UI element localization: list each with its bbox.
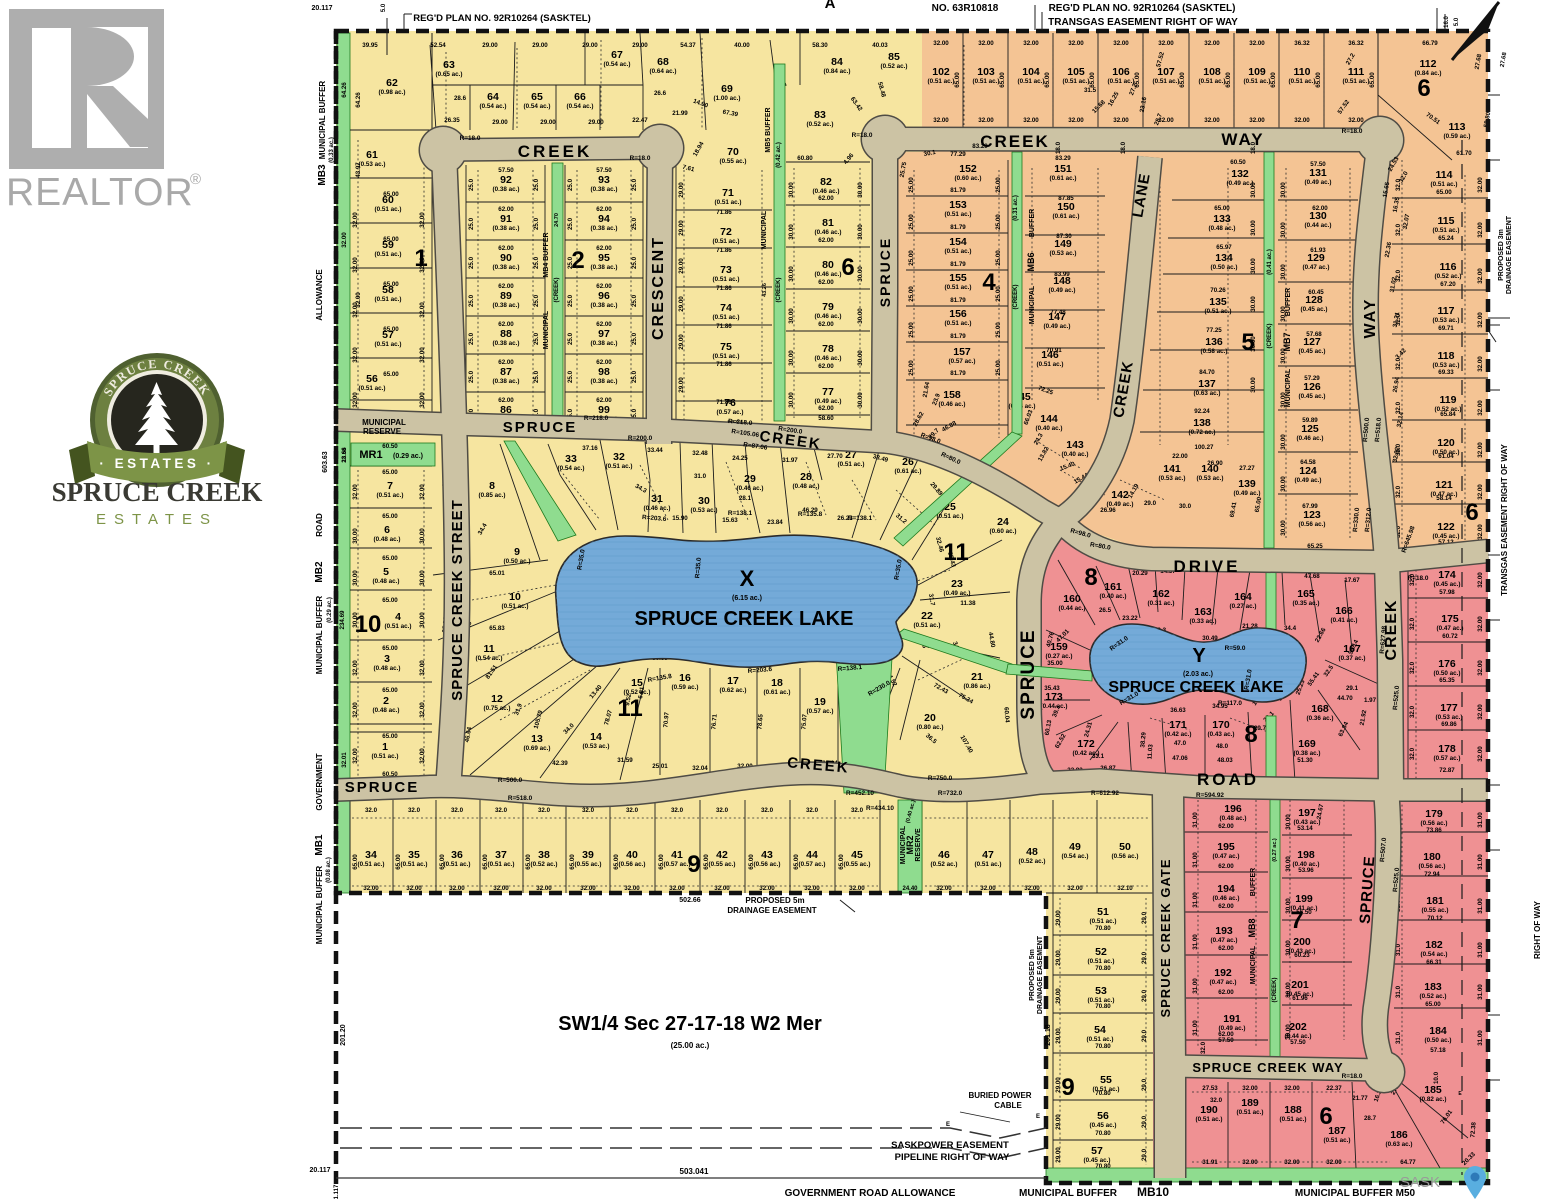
svg-text:TRANSGAS EASEMENT RIGHT O: TRANSGAS EASEMENT RIGHT OF WAY xyxy=(1048,17,1238,28)
svg-text:81.79: 81.79 xyxy=(950,187,966,194)
svg-text:PIPELINE RIGHT OF WAY: PIPELINE RIGHT OF WAY xyxy=(895,1152,1010,1163)
svg-text:65.00: 65.00 xyxy=(382,645,398,652)
svg-text:29.1: 29.1 xyxy=(1346,685,1359,692)
svg-text:102: 102 xyxy=(932,66,950,78)
svg-text:BUFFER: BUFFER xyxy=(1250,868,1257,896)
svg-text:RESERVE: RESERVE xyxy=(363,427,402,436)
svg-text:65.83: 65.83 xyxy=(489,625,505,632)
svg-text:25.0: 25.0 xyxy=(567,370,574,383)
svg-text:(0.98 ac.): (0.98 ac.) xyxy=(379,89,406,96)
svg-text:25.0: 25.0 xyxy=(533,294,540,307)
svg-text:25.0: 25.0 xyxy=(631,294,638,307)
svg-text:10: 10 xyxy=(355,611,382,638)
svg-text:84.70: 84.70 xyxy=(1199,369,1215,376)
svg-text:31.00: 31.00 xyxy=(1477,942,1484,958)
svg-text:REG'D PLAN NO. 92R10264: REG'D PLAN NO. 92R10264 (SASKTEL) xyxy=(413,13,591,24)
svg-text:57.98: 57.98 xyxy=(1439,589,1455,596)
svg-text:32.00: 32.00 xyxy=(419,484,426,500)
svg-text:71: 71 xyxy=(722,187,734,199)
svg-text:2: 2 xyxy=(571,247,584,274)
svg-text:65.00: 65.00 xyxy=(383,326,399,333)
svg-text:(0.51 ac.): (0.51 ac.) xyxy=(385,623,412,630)
svg-text:65.00: 65.00 xyxy=(1425,1001,1441,1008)
svg-text:29.00: 29.00 xyxy=(1055,1028,1062,1044)
svg-text:58.30: 58.30 xyxy=(812,42,828,49)
svg-text:R=612.92: R=612.92 xyxy=(1091,790,1119,797)
svg-text:37: 37 xyxy=(495,849,507,861)
svg-text:(0.43 ac.): (0.43 ac.) xyxy=(1208,731,1235,738)
svg-text:32.00: 32.00 xyxy=(1023,117,1039,124)
svg-text:32.00: 32.00 xyxy=(355,292,362,308)
svg-text:75: 75 xyxy=(720,341,732,353)
svg-text:98: 98 xyxy=(598,366,610,378)
svg-text:29.00: 29.00 xyxy=(632,42,648,49)
svg-text:83.29: 83.29 xyxy=(1055,155,1071,162)
svg-text:134: 134 xyxy=(1215,252,1233,264)
svg-text:6: 6 xyxy=(384,524,390,536)
svg-text:46: 46 xyxy=(938,849,950,861)
svg-text:(0.53 ac.): (0.53 ac.) xyxy=(1050,250,1077,257)
svg-text:66: 66 xyxy=(574,91,586,103)
svg-text:31.00: 31.00 xyxy=(1477,1030,1484,1046)
svg-text:32.00: 32.00 xyxy=(1477,524,1484,540)
svg-text:WAY: WAY xyxy=(1221,130,1264,149)
svg-text:29.0: 29.0 xyxy=(1144,500,1157,507)
svg-text:25.0: 25.0 xyxy=(468,332,475,345)
svg-text:(0.75 ac.): (0.75 ac.) xyxy=(484,705,511,712)
svg-text:32.00: 32.00 xyxy=(1249,117,1265,124)
svg-text:(0.46 ac.): (0.46 ac.) xyxy=(939,401,966,408)
svg-text:47.0: 47.0 xyxy=(1174,740,1187,747)
svg-text:32.00: 32.00 xyxy=(1477,356,1484,372)
svg-text:(0.47 ac.): (0.47 ac.) xyxy=(1211,937,1238,944)
svg-text:60.04: 60.04 xyxy=(1002,707,1010,724)
svg-text:64: 64 xyxy=(487,91,499,103)
svg-text:(0.29 ac.): (0.29 ac.) xyxy=(327,597,333,623)
svg-text:29.0: 29.0 xyxy=(1141,1148,1148,1161)
svg-text:6: 6 xyxy=(1417,75,1430,102)
svg-text:29: 29 xyxy=(744,473,756,485)
svg-text:42: 42 xyxy=(716,849,728,861)
svg-text:PROPOSED 5m: PROPOSED 5m xyxy=(1029,949,1036,1001)
svg-text:29.00: 29.00 xyxy=(588,119,604,126)
svg-text:32.00: 32.00 xyxy=(1477,660,1484,676)
svg-text:(0.47 ac.): (0.47 ac.) xyxy=(1213,853,1240,860)
svg-text:44: 44 xyxy=(806,849,818,861)
svg-text:8: 8 xyxy=(489,480,495,492)
svg-text:(0.51 ac.): (0.51 ac.) xyxy=(1237,1109,1264,1116)
svg-text:(0.44 ac.): (0.44 ac.) xyxy=(1059,605,1086,612)
svg-text:R=138.1: R=138.1 xyxy=(728,510,753,517)
svg-text:9: 9 xyxy=(514,546,520,558)
svg-text:61.04: 61.04 xyxy=(1438,453,1454,460)
svg-text:121: 121 xyxy=(1435,479,1453,491)
svg-text:177: 177 xyxy=(1440,702,1458,714)
svg-text:(25.00 ac.): (25.00 ac.) xyxy=(671,1041,710,1050)
svg-text:62.00: 62.00 xyxy=(596,206,612,213)
svg-text:65.00: 65.00 xyxy=(1369,72,1376,88)
svg-text:54.37: 54.37 xyxy=(680,42,696,49)
svg-text:(0.52 ac.): (0.52 ac.) xyxy=(531,861,558,868)
svg-text:(0.51 ac.): (0.51 ac.) xyxy=(945,211,972,218)
svg-text:7: 7 xyxy=(1290,907,1303,934)
svg-text:SPRUCE: SPRUCE xyxy=(1018,628,1039,719)
svg-text:190: 190 xyxy=(1200,1104,1218,1116)
svg-text:(0.46 ac.): (0.46 ac.) xyxy=(815,229,842,236)
svg-text:65.00: 65.00 xyxy=(382,733,398,740)
svg-text:(0.36 ac.): (0.36 ac.) xyxy=(1307,715,1334,722)
svg-text:176: 176 xyxy=(1438,658,1456,670)
svg-text:(0.42 ac.): (0.42 ac.) xyxy=(776,142,782,168)
svg-text:MB8: MB8 xyxy=(1247,918,1257,937)
svg-text:48: 48 xyxy=(1026,846,1038,858)
svg-text:37.16: 37.16 xyxy=(582,445,598,452)
svg-text:(0.56 ac.): (0.56 ac.) xyxy=(1421,820,1448,827)
svg-text:(0.51 ac.): (0.51 ac.) xyxy=(838,461,865,468)
svg-text:58.14: 58.14 xyxy=(1436,495,1452,502)
svg-text:(0.38 ac.): (0.38 ac.) xyxy=(591,302,618,309)
svg-text:32.00: 32.00 xyxy=(1294,117,1310,124)
svg-text:32.00: 32.00 xyxy=(419,302,426,318)
svg-text:(0.51 ac.): (0.51 ac.) xyxy=(1037,361,1064,368)
svg-text:30.00: 30.00 xyxy=(1280,182,1287,198)
svg-text:1.97: 1.97 xyxy=(1364,697,1377,704)
svg-text:32.0: 32.0 xyxy=(626,807,639,814)
svg-text:30.0: 30.0 xyxy=(1179,503,1192,510)
svg-text:69: 69 xyxy=(721,83,733,95)
svg-text:32.0: 32.0 xyxy=(451,807,464,814)
svg-text:MB6: MB6 xyxy=(1026,252,1036,271)
svg-text:(0.62 ac.): (0.62 ac.) xyxy=(720,687,747,694)
svg-text:32.00: 32.00 xyxy=(978,40,994,47)
svg-text:30.00: 30.00 xyxy=(1285,856,1292,872)
svg-text:119: 119 xyxy=(1440,394,1457,406)
svg-text:65.00: 65.00 xyxy=(383,281,399,288)
svg-text:185: 185 xyxy=(1424,1084,1442,1096)
svg-text:71.86: 71.86 xyxy=(716,323,732,330)
svg-text:138: 138 xyxy=(1193,417,1211,429)
svg-text:32.0: 32.0 xyxy=(365,807,378,814)
svg-text:(0.48 ac.): (0.48 ac.) xyxy=(374,665,401,672)
svg-text:43.26: 43.26 xyxy=(762,283,768,297)
svg-text:131: 131 xyxy=(1309,167,1327,179)
svg-text:117: 117 xyxy=(1438,305,1455,317)
svg-text:57.68: 57.68 xyxy=(1306,331,1322,338)
svg-text:105: 105 xyxy=(1067,66,1085,78)
svg-text:24.25: 24.25 xyxy=(732,455,748,462)
svg-text:32.00: 32.00 xyxy=(419,660,426,676)
svg-text:71.86: 71.86 xyxy=(716,361,732,368)
svg-text:113: 113 xyxy=(1449,121,1466,133)
svg-text:(0.44 ac.): (0.44 ac.) xyxy=(1305,222,1332,229)
svg-text:SPRUCE: SPRUCE xyxy=(503,419,578,436)
svg-text:32.00: 32.00 xyxy=(1158,40,1174,47)
svg-text:65.00: 65.00 xyxy=(383,371,399,378)
svg-text:65.00: 65.00 xyxy=(748,854,755,870)
svg-text:80: 80 xyxy=(822,259,834,271)
svg-text:25.01: 25.01 xyxy=(652,763,668,770)
svg-text:78: 78 xyxy=(822,343,834,355)
svg-text:DRIVE: DRIVE xyxy=(1174,557,1241,576)
svg-text:(0.56 ac.): (0.56 ac.) xyxy=(1112,853,1139,860)
svg-text:39: 39 xyxy=(582,849,594,861)
svg-text:8: 8 xyxy=(1244,721,1257,748)
svg-text:25.0: 25.0 xyxy=(533,217,540,230)
svg-text:124: 124 xyxy=(1299,465,1317,477)
svg-text:(CREEK): (CREEK) xyxy=(1013,284,1019,309)
svg-text:32.00: 32.00 xyxy=(1477,616,1484,632)
svg-text:®: ® xyxy=(190,171,201,188)
svg-text:(0.51 ac.): (0.51 ac.) xyxy=(713,353,740,360)
svg-text:132: 132 xyxy=(1231,168,1249,180)
svg-text:69.33: 69.33 xyxy=(1438,369,1454,376)
svg-text:(0.61 ac.): (0.61 ac.) xyxy=(1050,175,1077,182)
svg-text:(0.51 ac.): (0.51 ac.) xyxy=(945,248,972,255)
svg-text:(0.51 ac.): (0.51 ac.) xyxy=(715,199,742,206)
svg-text:62.00: 62.00 xyxy=(818,405,834,412)
svg-text:104: 104 xyxy=(1022,66,1040,78)
svg-text:38.29: 38.29 xyxy=(1139,731,1147,748)
svg-text:(0.64 ac.): (0.64 ac.) xyxy=(650,68,677,75)
svg-text:65.24: 65.24 xyxy=(1438,235,1454,242)
svg-text:(0.40 ac.): (0.40 ac.) xyxy=(1036,425,1063,432)
svg-text:197: 197 xyxy=(1298,807,1316,819)
svg-text:(0.56 ac.): (0.56 ac.) xyxy=(619,861,646,868)
svg-text:22.47: 22.47 xyxy=(632,117,648,124)
svg-text:(0.63 ac.): (0.63 ac.) xyxy=(1194,390,1221,397)
svg-text:33.44: 33.44 xyxy=(647,447,663,454)
svg-text:70.91: 70.91 xyxy=(1046,347,1062,354)
svg-text:160: 160 xyxy=(1063,593,1081,605)
svg-text:(0.61 ac.): (0.61 ac.) xyxy=(764,689,791,696)
svg-text:167: 167 xyxy=(1343,643,1361,655)
svg-text:(0.54 ac.): (0.54 ac.) xyxy=(524,103,551,110)
svg-text:(0.53 ac.): (0.53 ac.) xyxy=(1433,362,1460,369)
svg-text:(0.38 ac.): (0.38 ac.) xyxy=(493,378,520,385)
svg-text:DRAINAGE EASEMENT: DRAINAGE EASEMENT xyxy=(727,906,816,915)
svg-text:85: 85 xyxy=(888,51,900,63)
svg-text:32.0: 32.0 xyxy=(1395,223,1402,236)
svg-text:71.86: 71.86 xyxy=(716,209,732,216)
svg-text:(0.51 ac.): (0.51 ac.) xyxy=(377,492,404,499)
svg-text:WAY: WAY xyxy=(1362,298,1379,339)
svg-text:53: 53 xyxy=(1095,985,1107,997)
svg-text:139: 139 xyxy=(1238,478,1256,490)
svg-text:(0.51 ac.): (0.51 ac.) xyxy=(1289,78,1316,85)
svg-text:(0.55 ac.): (0.55 ac.) xyxy=(844,861,871,868)
svg-text:83: 83 xyxy=(814,109,826,121)
svg-text:87: 87 xyxy=(500,366,512,378)
svg-text:30.00: 30.00 xyxy=(857,266,864,282)
svg-text:(0.27 ac.): (0.27 ac.) xyxy=(1230,603,1257,610)
svg-text:14: 14 xyxy=(590,731,602,743)
svg-text:7: 7 xyxy=(387,480,393,492)
svg-text:(0.51 ac.): (0.51 ac.) xyxy=(488,861,515,868)
svg-text:32.00: 32.00 xyxy=(1249,40,1265,47)
svg-text:MB5 BUFFER: MB5 BUFFER xyxy=(765,107,772,152)
svg-text:10.0: 10.0 xyxy=(1433,1071,1440,1084)
svg-text:R=218.0: R=218.0 xyxy=(584,415,609,422)
svg-text:72.38: 72.38 xyxy=(1469,1121,1477,1138)
svg-text:23.22: 23.22 xyxy=(1122,615,1138,622)
svg-text:25.0: 25.0 xyxy=(533,370,540,383)
svg-text:29.00: 29.00 xyxy=(1055,910,1062,926)
svg-text:125: 125 xyxy=(1301,423,1319,435)
svg-text:29.00: 29.00 xyxy=(582,42,598,49)
svg-text:50: 50 xyxy=(1119,841,1131,853)
svg-text:(0.51 ac.): (0.51 ac.) xyxy=(713,238,740,245)
svg-text:32.00: 32.00 xyxy=(419,702,426,718)
svg-text:38: 38 xyxy=(538,849,550,861)
svg-text:62.00: 62.00 xyxy=(596,321,612,328)
svg-text:96: 96 xyxy=(598,290,610,302)
svg-text:(0.55 ac.): (0.55 ac.) xyxy=(1422,907,1449,914)
svg-text:(0.50 ac.): (0.50 ac.) xyxy=(1211,264,1238,271)
svg-text:57.50: 57.50 xyxy=(1218,1037,1234,1044)
svg-text:44.70: 44.70 xyxy=(1337,695,1353,702)
svg-text:65.00: 65.00 xyxy=(1179,72,1186,88)
svg-text:65.00: 65.00 xyxy=(383,191,399,198)
svg-text:MR2: MR2 xyxy=(905,835,915,854)
svg-text:62.00: 62.00 xyxy=(1312,205,1328,212)
svg-text:(CREEK): (CREEK) xyxy=(1272,977,1278,1002)
svg-text:(0.45 ac.): (0.45 ac.) xyxy=(1299,393,1326,400)
svg-text:28: 28 xyxy=(800,471,812,483)
svg-text:67.99: 67.99 xyxy=(1302,503,1318,510)
svg-text:(0.48 ac.): (0.48 ac.) xyxy=(1220,815,1247,822)
svg-text:182: 182 xyxy=(1425,939,1443,951)
svg-text:81.79: 81.79 xyxy=(950,297,966,304)
svg-text:15.63: 15.63 xyxy=(722,517,738,524)
svg-text:MB3: MB3 xyxy=(317,164,328,186)
svg-text:30.00: 30.00 xyxy=(857,182,864,198)
svg-text:183: 183 xyxy=(1424,981,1442,993)
svg-text:(0.51 ac.): (0.51 ac.) xyxy=(375,206,402,213)
svg-text:(0.41 ac.): (0.41 ac.) xyxy=(1267,249,1273,275)
svg-text:25.00: 25.00 xyxy=(995,177,1002,193)
svg-text:(0.52 ac.): (0.52 ac.) xyxy=(1435,273,1462,280)
svg-text:158: 158 xyxy=(943,389,961,401)
svg-text:(0.51 ac.): (0.51 ac.) xyxy=(1108,78,1135,85)
svg-text:32.00: 32.00 xyxy=(1477,484,1484,500)
svg-text:35.43: 35.43 xyxy=(1044,685,1060,692)
svg-text:RIGHT OF WAY: RIGHT OF WAY xyxy=(1533,900,1542,959)
svg-text:(0.53 ac.): (0.53 ac.) xyxy=(691,507,718,514)
svg-text:R=18.0: R=18.0 xyxy=(1342,1073,1363,1080)
svg-text:CRESCENT: CRESCENT xyxy=(650,236,667,340)
svg-text:(0.31 ac.): (0.31 ac.) xyxy=(1148,600,1175,607)
svg-text:MB4 BUFFER: MB4 BUFFER xyxy=(543,232,550,277)
svg-text:2: 2 xyxy=(383,695,389,707)
svg-text:33: 33 xyxy=(565,453,577,465)
svg-text:(0.72 ac.): (0.72 ac.) xyxy=(1189,429,1216,436)
svg-text:22: 22 xyxy=(921,610,933,622)
svg-text:69.71: 69.71 xyxy=(1438,325,1454,332)
svg-text:81.79: 81.79 xyxy=(950,333,966,340)
svg-text:32.00: 32.00 xyxy=(352,347,359,363)
svg-text:62.00: 62.00 xyxy=(596,397,612,404)
svg-text:(0.54 ac.): (0.54 ac.) xyxy=(558,465,585,472)
svg-text:R=18.0: R=18.0 xyxy=(460,135,481,142)
svg-text:180: 180 xyxy=(1423,851,1441,863)
svg-text:1: 1 xyxy=(414,245,427,272)
svg-text:196: 196 xyxy=(1224,803,1242,815)
svg-text:32.00: 32.00 xyxy=(1477,746,1484,762)
svg-text:32.00: 32.00 xyxy=(419,212,426,228)
svg-text:65.00: 65.00 xyxy=(382,469,398,476)
svg-text:PROPOSED 3m: PROPOSED 3m xyxy=(1498,229,1505,281)
svg-text:25.0: 25.0 xyxy=(567,332,574,345)
svg-text:53.14: 53.14 xyxy=(1297,825,1313,832)
svg-text:(0.54 ac.): (0.54 ac.) xyxy=(480,103,507,110)
svg-text:31.0: 31.0 xyxy=(1395,1031,1402,1044)
svg-text:64.77: 64.77 xyxy=(1400,1159,1416,1166)
svg-text:90: 90 xyxy=(500,252,512,264)
svg-text:9: 9 xyxy=(687,851,700,878)
svg-text:65: 65 xyxy=(531,91,543,103)
svg-text:(0.55 ac.): (0.55 ac.) xyxy=(575,861,602,868)
svg-text:(0.46 ac.): (0.46 ac.) xyxy=(815,313,842,320)
svg-text:(0.51 ac.): (0.51 ac.) xyxy=(1196,1116,1223,1123)
svg-text:MUNICIPAL BUFFER: MUNICIPAL BUFFER xyxy=(315,866,324,945)
svg-text:502.66: 502.66 xyxy=(679,897,701,904)
svg-text:65.00: 65.00 xyxy=(793,854,800,870)
svg-text:MB10: MB10 xyxy=(1137,1185,1169,1199)
svg-text:140: 140 xyxy=(1201,463,1219,475)
svg-text:(0.46 ac.): (0.46 ac.) xyxy=(737,485,764,492)
svg-text:40.00: 40.00 xyxy=(734,42,750,49)
svg-text:62.00: 62.00 xyxy=(1218,823,1234,830)
svg-text:(0.38 ac.): (0.38 ac.) xyxy=(591,264,618,271)
svg-text:(0.40 ac.): (0.40 ac.) xyxy=(1062,451,1089,458)
svg-text:(0.51 ac.): (0.51 ac.) xyxy=(375,251,402,258)
svg-text:(CREEK): (CREEK) xyxy=(776,277,782,302)
svg-text:(0.50 ac.): (0.50 ac.) xyxy=(1434,670,1461,677)
svg-text:154: 154 xyxy=(949,236,967,248)
svg-text:65.00: 65.00 xyxy=(1270,72,1277,88)
svg-text:136: 136 xyxy=(1205,336,1223,348)
svg-text:(0.60 ac.): (0.60 ac.) xyxy=(990,528,1017,535)
svg-text:25.0: 25.0 xyxy=(533,178,540,191)
svg-text:30: 30 xyxy=(698,495,710,507)
svg-text:65.00: 65.00 xyxy=(395,854,402,870)
svg-text:(0.35 ac.): (0.35 ac.) xyxy=(1293,600,1320,607)
svg-text:73.86: 73.86 xyxy=(1426,827,1442,834)
svg-text:(0.61 ac.): (0.61 ac.) xyxy=(895,468,922,475)
svg-text:(0.52 ac.): (0.52 ac.) xyxy=(1420,993,1447,1000)
svg-text:64.26: 64.26 xyxy=(341,82,348,98)
svg-text:29.00: 29.00 xyxy=(1055,1114,1062,1130)
svg-text:19: 19 xyxy=(814,696,826,708)
svg-text:Y: Y xyxy=(1192,645,1206,667)
svg-text:MUNICIPAL BUFFER: MUNICIPAL BUFFER xyxy=(318,81,327,160)
svg-text:SPRUCE CREEK LAKE: SPRUCE CREEK LAKE xyxy=(1108,679,1283,696)
svg-text:31.0: 31.0 xyxy=(1395,985,1402,998)
svg-text:201: 201 xyxy=(1291,979,1309,991)
svg-text:64.58: 64.58 xyxy=(1300,459,1316,466)
svg-text:32.00: 32.00 xyxy=(1242,1085,1258,1092)
svg-text:SASKPOWER EASEMENT: SASKPOWER EASEMENT xyxy=(891,1140,1009,1151)
svg-text:GOVERNMENT ROAD AL: GOVERNMENT ROAD ALLOWANCE xyxy=(785,1188,956,1199)
svg-text:(0.53 ac.): (0.53 ac.) xyxy=(1197,475,1224,482)
svg-text:(0.49 ac.): (0.49 ac.) xyxy=(1305,179,1332,186)
svg-text:63: 63 xyxy=(443,59,455,71)
svg-text:66.79: 66.79 xyxy=(1422,40,1438,47)
svg-text:32.00: 32.00 xyxy=(978,117,994,124)
svg-text:(0.51 ac.): (0.51 ac.) xyxy=(401,861,428,868)
svg-text:30.00: 30.00 xyxy=(857,392,864,408)
svg-text:(0.51 ac.): (0.51 ac.) xyxy=(945,320,972,327)
